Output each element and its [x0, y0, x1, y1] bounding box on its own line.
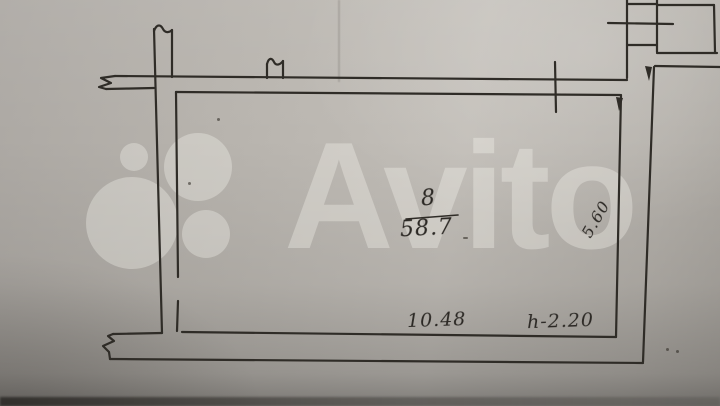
- adjacent-room-right: [714, 5, 715, 52]
- wall-stub-break-cap: [267, 59, 283, 65]
- bottom-wall-lower-line: [110, 359, 643, 363]
- top-wall-lower-line-main: [176, 92, 620, 95]
- top-wall-upper-line: [115, 76, 627, 80]
- room-bottom-line: [182, 332, 616, 337]
- width-dimension-label: 10.48: [407, 308, 467, 332]
- paper-speck: [188, 182, 191, 185]
- room-area-label: 58.7: [399, 215, 453, 243]
- paper-speck: [666, 348, 669, 351]
- paper-speck: [676, 350, 679, 353]
- room-right-wall: [616, 95, 621, 337]
- right-wall-outer-line: [643, 67, 654, 362]
- bottom-wall-upper-line-left: [113, 333, 162, 334]
- ceiling-height-label: h-2.20: [527, 309, 595, 333]
- paper-speck: [463, 237, 468, 239]
- top-wall-left-break-symbol: [99, 76, 115, 89]
- top-wall-lower-line-left: [106, 88, 154, 89]
- room-corner-arrowhead: [616, 97, 623, 111]
- right-structure-crossing-line: [608, 23, 673, 24]
- floorplan-photo: Avito: [0, 0, 720, 406]
- bottom-wall-left-break-symbol: [103, 334, 114, 359]
- room-number-label: 8: [420, 186, 437, 212]
- right-outer-corner-line: [655, 66, 720, 67]
- left-wall-outer-line: [154, 29, 162, 333]
- room-left-wall-lower: [177, 301, 178, 331]
- room-left-wall-upper: [176, 92, 178, 277]
- down-arrowhead: [645, 66, 652, 81]
- photo-bottom-edge-shadow: [0, 397, 720, 406]
- left-wall-top-break-cap: [154, 26, 172, 33]
- paper-speck: [217, 118, 220, 121]
- floorplan-drawing: [0, 0, 720, 406]
- survey-tick-mark: [555, 62, 556, 112]
